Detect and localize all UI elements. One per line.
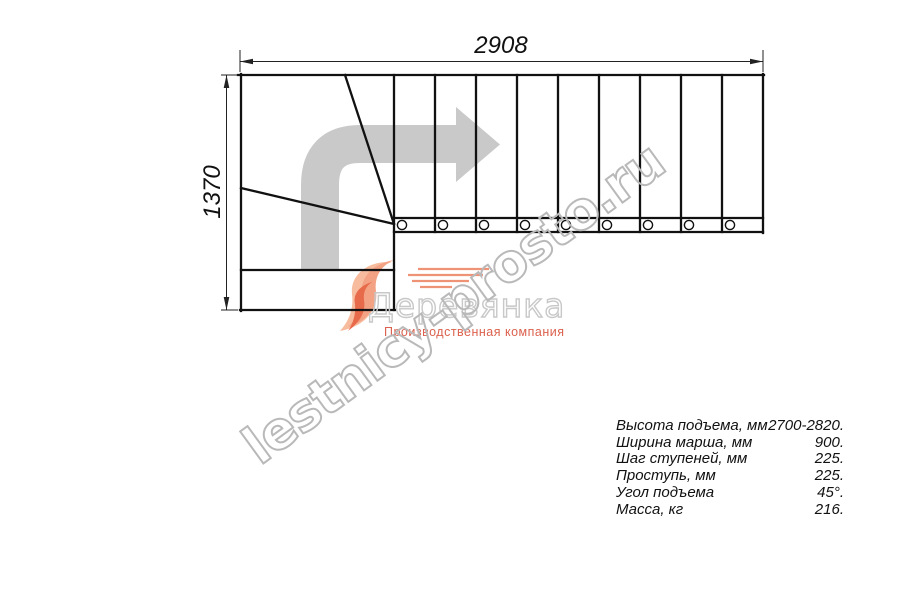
dim-arrow-up xyxy=(224,75,230,88)
spec-row: Ширина марша, мм 900. xyxy=(616,435,844,452)
dimension-left: 1370 xyxy=(199,75,238,310)
dim-height-label: 1370 xyxy=(199,165,226,219)
spec-label: Высота подъема, мм xyxy=(616,418,768,435)
spec-row: Угол подъема 45°. xyxy=(616,485,844,502)
spec-label: Проступь, мм xyxy=(616,468,716,485)
spec-value: 225. xyxy=(815,451,844,468)
spec-value: 45°. xyxy=(817,485,844,502)
dim-arrow-right xyxy=(750,59,763,65)
specs-table: Высота подъема, мм 2700-2820. Ширина мар… xyxy=(616,418,844,518)
spec-label: Ширина марша, мм xyxy=(616,435,752,452)
dimension-top: 2908 xyxy=(240,32,763,72)
spec-label: Шаг ступеней, мм xyxy=(616,451,747,468)
dim-width-label: 2908 xyxy=(473,32,528,59)
spec-row: Проступь, мм 225. xyxy=(616,468,844,485)
stair-plan-drawing: 2908 1370 Деревянка Производственная ком… xyxy=(0,0,900,600)
spec-row: Высота подъема, мм 2700-2820. xyxy=(616,418,844,435)
dim-arrow-down xyxy=(224,297,230,310)
spec-value: 2700-2820. xyxy=(768,418,844,435)
spec-label: Угол подъема xyxy=(616,485,714,502)
spec-value: 900. xyxy=(815,435,844,452)
spec-row: Шаг ступеней, мм 225. xyxy=(616,451,844,468)
spec-label: Масса, кг xyxy=(616,502,683,519)
spec-value: 216. xyxy=(815,502,844,519)
spec-value: 225. xyxy=(815,468,844,485)
dim-arrow-left xyxy=(240,59,253,65)
direction-arrow-icon xyxy=(320,107,500,269)
spec-row: Масса, кг 216. xyxy=(616,502,844,519)
